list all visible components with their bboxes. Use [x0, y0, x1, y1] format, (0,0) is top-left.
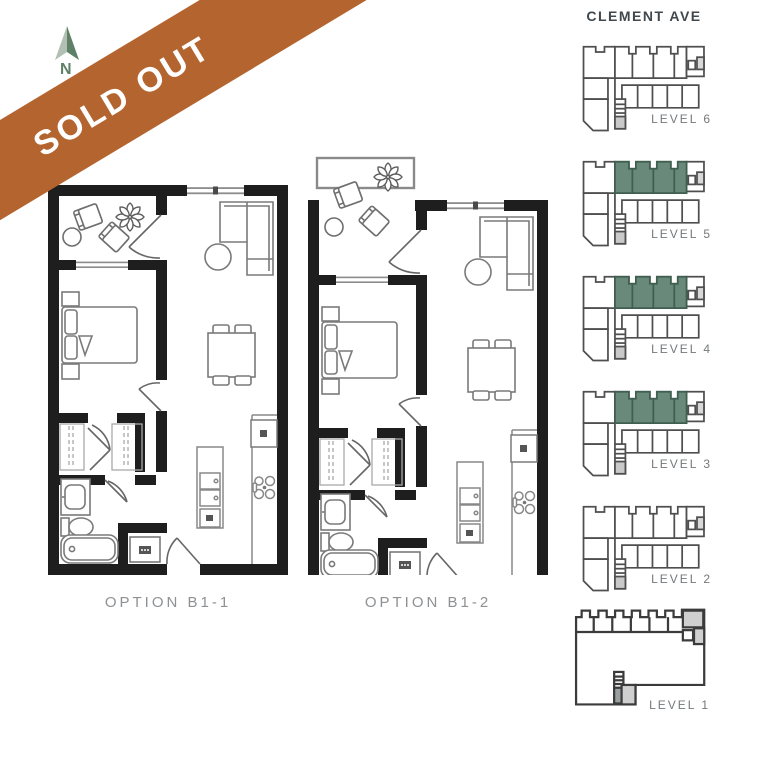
- north-arrow-icon: N: [50, 24, 84, 76]
- balcony-top-wall: [48, 185, 158, 196]
- keyplan-level: LEVEL 6: [576, 31, 712, 135]
- keyplan-level: LEVEL 5: [576, 146, 712, 250]
- level-label: LEVEL 3: [651, 457, 712, 471]
- street-label: CLEMENT AVE: [576, 8, 712, 24]
- keyplan-level: LEVEL 2: [576, 491, 712, 595]
- level-label: LEVEL 5: [651, 227, 712, 241]
- floor-plan-b1-2: [308, 155, 548, 575]
- level-label: LEVEL 1: [649, 698, 710, 712]
- level-label: LEVEL 2: [651, 572, 712, 586]
- keyplan-level: LEVEL 1: [576, 606, 712, 716]
- plan-caption-b1-1: OPTION B1-1: [58, 594, 278, 611]
- keyplan-sidebar: CLEMENT AVE LEVEL 6 LEVEL 5 LEVEL 4 LEVE…: [576, 8, 712, 716]
- level-footprint-diagram: [572, 606, 712, 710]
- keyplan-level: LEVEL 3: [576, 376, 712, 480]
- level-label: LEVEL 6: [651, 112, 712, 126]
- balcony-parapet: [317, 158, 414, 188]
- keyplan-levels: LEVEL 6 LEVEL 5 LEVEL 4 LEVEL 3 LEVEL 2: [576, 31, 712, 716]
- keyplan-level: LEVEL 4: [576, 261, 712, 365]
- floorplan-sheet: { "banner": { "label": "SOLD OUT", "colo…: [0, 0, 768, 759]
- floor-plan-b1-1: [48, 185, 288, 575]
- north-label: N: [60, 61, 72, 76]
- level-label: LEVEL 4: [651, 342, 712, 356]
- plan-caption-b1-2: OPTION B1-2: [318, 594, 538, 611]
